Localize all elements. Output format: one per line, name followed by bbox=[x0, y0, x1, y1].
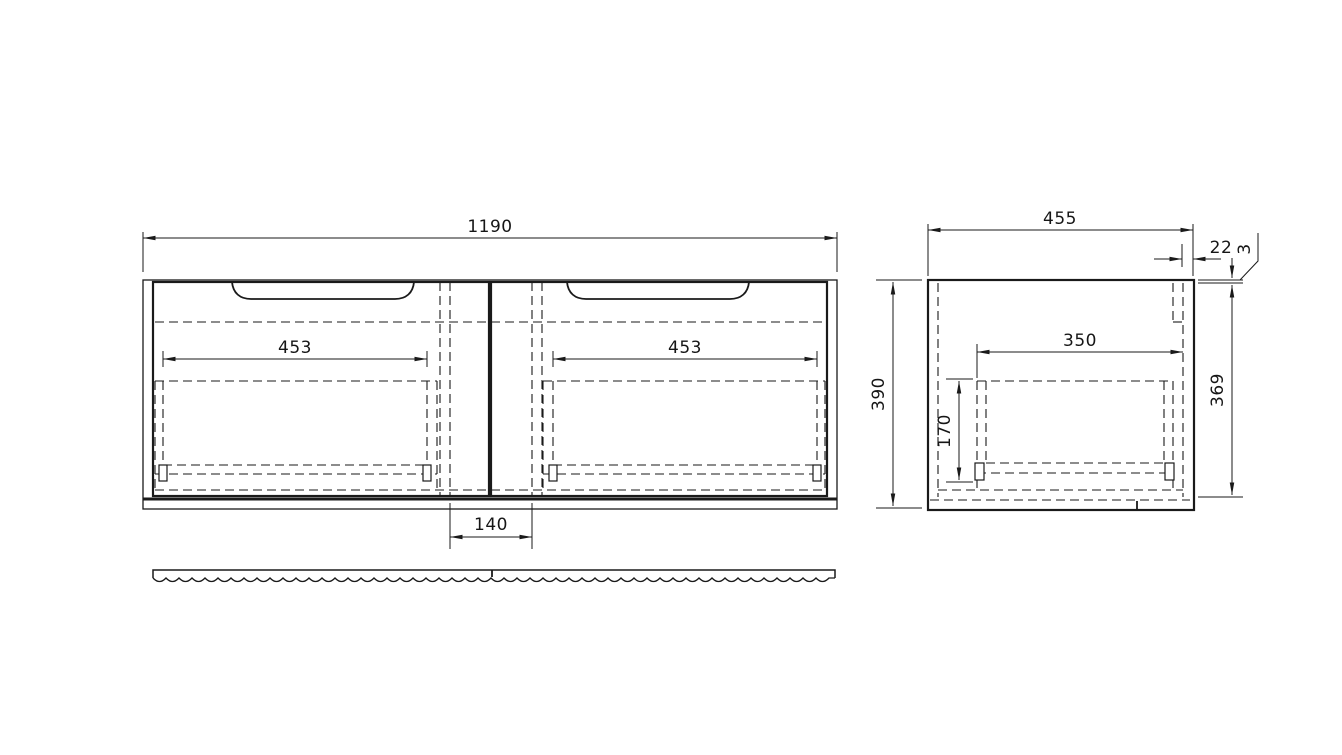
side-runner-brackets bbox=[975, 463, 1174, 480]
dim-center-spacing-label: 140 bbox=[474, 515, 508, 535]
right-drawer-front bbox=[491, 282, 827, 496]
runner-bracket bbox=[423, 465, 431, 481]
side-view: 455 22 bbox=[869, 209, 1258, 510]
dim-height: 390 bbox=[869, 280, 922, 508]
dim-inner-depth: 350 bbox=[977, 331, 1183, 378]
dim-right-drawer-label: 453 bbox=[668, 338, 702, 358]
dim-inner-height: 369 bbox=[1198, 280, 1243, 497]
dim-drawer-opening-height: 170 bbox=[935, 379, 973, 482]
left-handle-recess bbox=[232, 282, 414, 299]
dim-right-drawer-width: 453 bbox=[553, 338, 817, 367]
left-drawer-front bbox=[153, 282, 489, 496]
dim-overall-width-label: 1190 bbox=[467, 217, 512, 237]
side-carcass-outline bbox=[928, 280, 1194, 510]
runner-bracket bbox=[1165, 463, 1174, 480]
dim-top-edge: 3 bbox=[1232, 233, 1258, 280]
dim-back-offset-label: 22 bbox=[1210, 238, 1233, 258]
runner-bracket bbox=[159, 465, 167, 481]
front-view: 1190 bbox=[143, 217, 837, 549]
strip-wave bbox=[153, 578, 835, 582]
dim-drawer-opening-height-label: 170 bbox=[935, 414, 955, 448]
section-strip bbox=[153, 570, 835, 582]
dim-center-spacing: 140 bbox=[450, 503, 532, 549]
strip-outline bbox=[153, 570, 835, 578]
dim-height-label: 390 bbox=[869, 377, 889, 411]
runner-bracket bbox=[813, 465, 821, 481]
dim-depth-label: 455 bbox=[1043, 209, 1077, 229]
dim-left-drawer-width: 453 bbox=[163, 338, 427, 367]
dim-left-drawer-label: 453 bbox=[278, 338, 312, 358]
dim-top-edge-label: 3 bbox=[1235, 243, 1255, 254]
runner-bracket bbox=[975, 463, 984, 480]
dim-overall-width: 1190 bbox=[143, 217, 837, 272]
dim-depth: 455 bbox=[928, 209, 1193, 276]
drawing-page: 1190 bbox=[0, 0, 1342, 755]
runner-bracket bbox=[549, 465, 557, 481]
technical-drawing: 1190 bbox=[0, 0, 1342, 755]
dim-inner-height-label: 369 bbox=[1208, 373, 1228, 407]
leader-line bbox=[1240, 233, 1258, 280]
side-hidden-lines bbox=[930, 283, 1190, 500]
dim-inner-depth-label: 350 bbox=[1063, 331, 1097, 351]
right-handle-recess bbox=[567, 282, 749, 299]
